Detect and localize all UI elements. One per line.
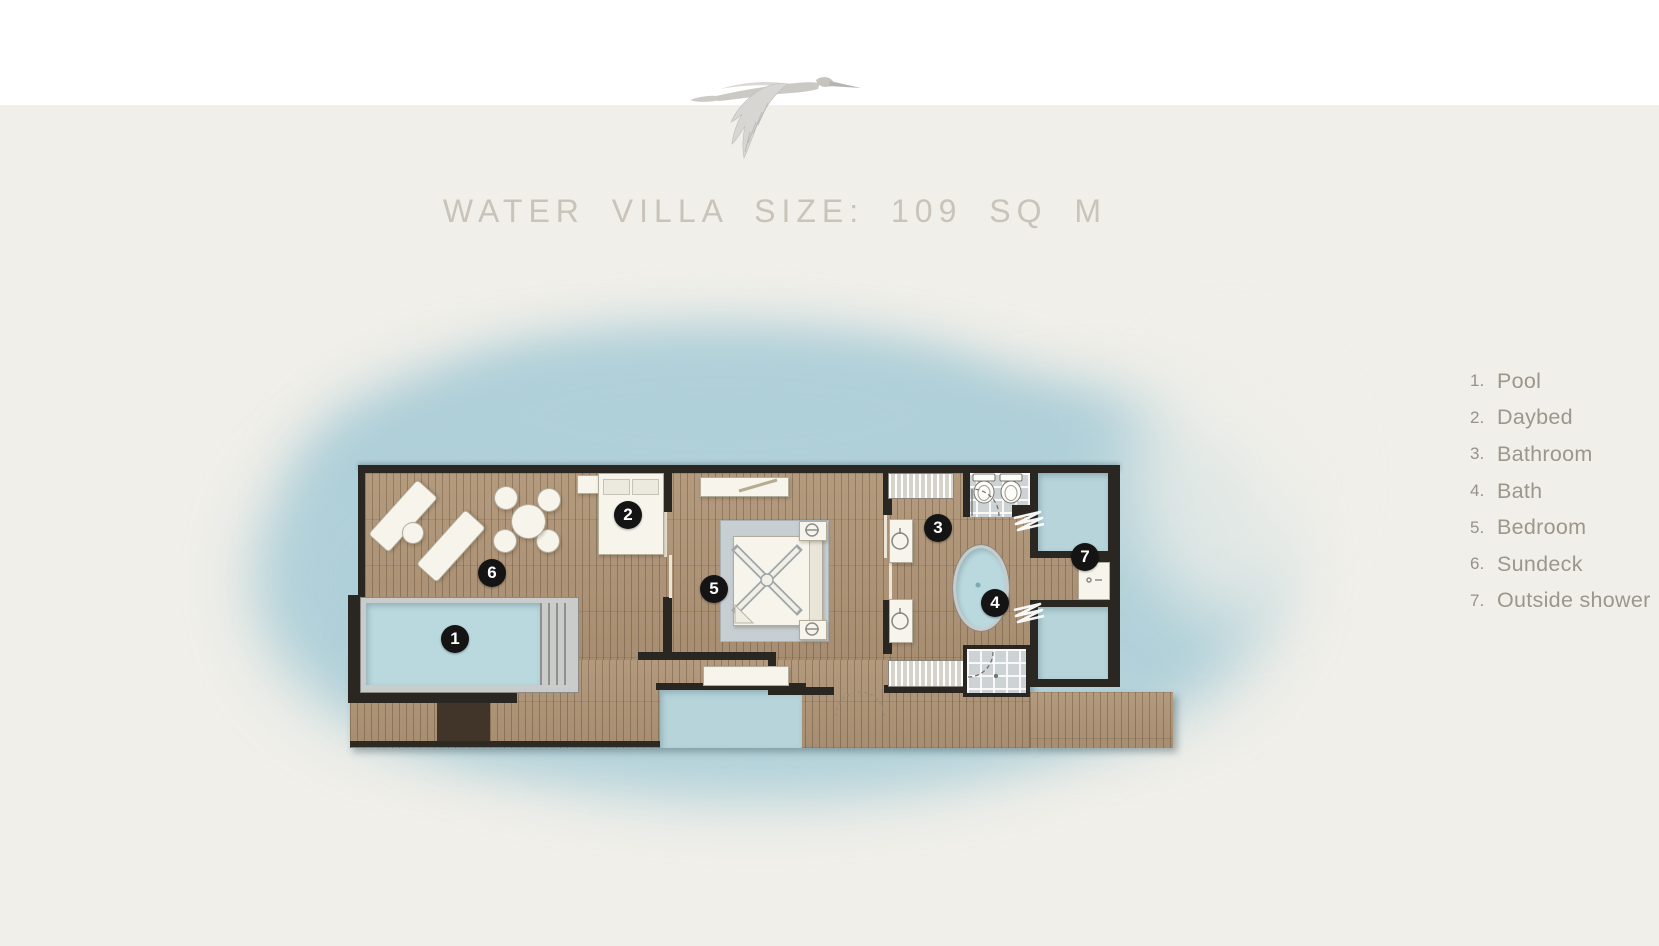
open-water-deck	[1038, 473, 1108, 551]
water-villa-plan-page: WATER VILLA SIZE: 109 SQ M	[0, 0, 1659, 946]
wall-segment	[663, 597, 672, 654]
dining-table	[511, 504, 546, 539]
wall-segment	[776, 687, 834, 695]
legend-item-bathroom: 3. Bathroom	[1470, 436, 1651, 473]
dining-chair	[493, 529, 517, 553]
bench	[700, 477, 789, 497]
legend: 1. Pool 2. Daybed 3. Bathroom 4. Bath 5.…	[1470, 363, 1651, 619]
dining-chair	[494, 486, 518, 510]
heron-icon	[688, 40, 862, 162]
marker-sundeck: 6	[478, 559, 506, 587]
daybed-pillow	[632, 479, 659, 495]
sliding-door	[669, 555, 672, 598]
bathtub	[953, 545, 1009, 631]
nightstand	[799, 620, 827, 640]
marker-bathroom: 3	[924, 514, 952, 542]
daybed-pillow	[603, 479, 630, 495]
walkway-deck	[1030, 692, 1173, 748]
bed-headboard	[809, 536, 822, 624]
wall-segment	[1030, 600, 1038, 687]
nightstand	[799, 521, 827, 541]
open-water-deck	[1038, 607, 1108, 679]
sliding-door	[884, 515, 887, 558]
wall-segment	[358, 465, 365, 600]
pool-steps	[540, 603, 568, 685]
wardrobe	[888, 473, 954, 499]
legend-item-outside-shower: 7. Outside shower	[1470, 583, 1651, 620]
wall-segment	[1012, 505, 1030, 517]
legend-item-sundeck: 6. Sundeck	[1470, 546, 1651, 583]
wall-segment	[358, 465, 1120, 473]
side-table	[402, 522, 424, 544]
legend-item-pool: 1. Pool	[1470, 363, 1651, 400]
wall-segment	[1030, 679, 1120, 687]
marker-bedroom: 5	[700, 575, 728, 603]
sink-vanity	[889, 519, 913, 563]
sink-vanity	[889, 599, 913, 643]
pool-frame	[348, 595, 360, 703]
wall-segment	[663, 473, 672, 512]
sliding-door	[664, 512, 667, 557]
wall-segment	[1038, 600, 1108, 607]
shelf	[577, 475, 599, 494]
legend-item-bath: 4. Bath	[1470, 473, 1651, 510]
walkway-water-gap	[660, 690, 802, 748]
wall-segment	[638, 652, 775, 660]
marker-bath: 4	[981, 589, 1009, 617]
wall-segment	[963, 473, 970, 517]
marker-pool: 1	[441, 625, 469, 653]
deck-opening	[437, 703, 490, 741]
shower-room	[963, 645, 1030, 697]
wall-segment	[1030, 465, 1038, 558]
legend-item-daybed: 2. Daybed	[1470, 400, 1651, 437]
legend-item-bedroom: 5. Bedroom	[1470, 509, 1651, 546]
wardrobe	[888, 660, 965, 687]
walkway-edge	[350, 741, 660, 747]
marker-outside-shower: 7	[1071, 543, 1099, 571]
page-title: WATER VILLA SIZE: 109 SQ M	[375, 193, 1175, 230]
water-shadow-highlight	[1130, 340, 1330, 620]
bench	[703, 666, 789, 686]
marker-daybed: 2	[614, 501, 642, 529]
